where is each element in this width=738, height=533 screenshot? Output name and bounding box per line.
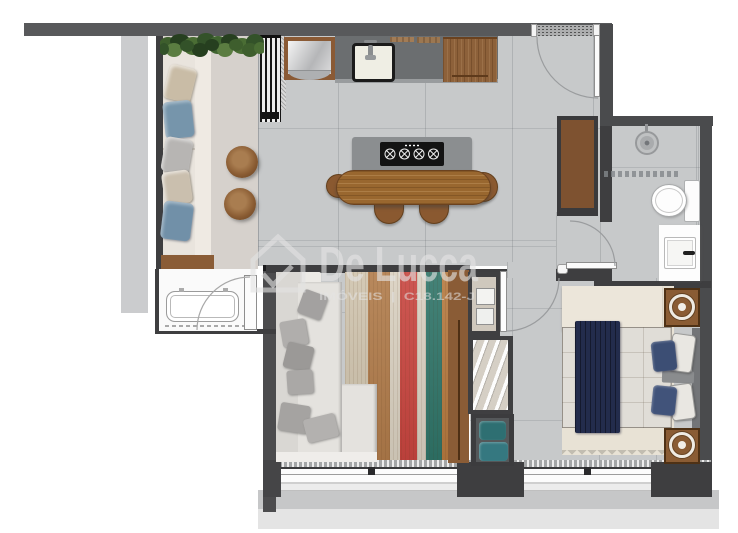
svg-text:De Lucca: De Lucca — [319, 238, 479, 292]
svg-text:IMÓVEIS | C18.142-J: IMÓVEIS | C18.142-J — [319, 290, 475, 303]
